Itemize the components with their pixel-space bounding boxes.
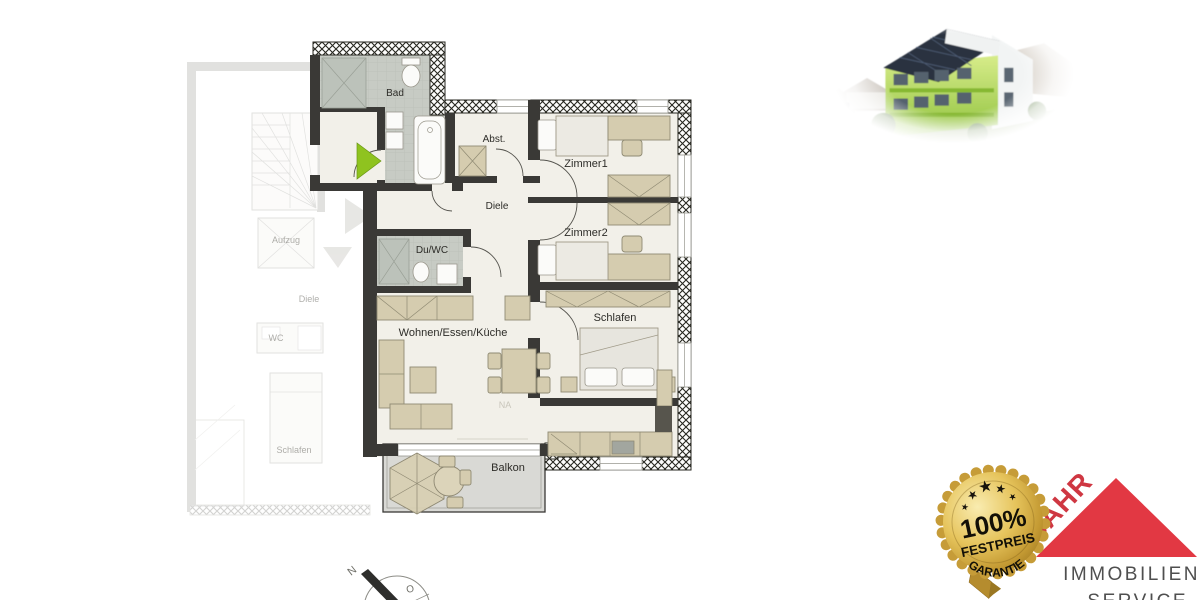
ghost-label-diele: Diele bbox=[299, 294, 320, 304]
room-label-diele: Diele bbox=[486, 201, 509, 212]
chair bbox=[622, 236, 642, 252]
sink bbox=[437, 264, 457, 284]
flyer-canvas: Aufzug Diele WC Schlafen bbox=[0, 0, 1200, 600]
pillow bbox=[622, 368, 654, 386]
room-label-balkon: Balkon bbox=[491, 462, 525, 474]
wardrobe bbox=[608, 203, 670, 225]
kitchen-counter bbox=[505, 296, 530, 320]
compass-north-label: N bbox=[345, 564, 359, 578]
room-label-duwc: Du/WC bbox=[416, 245, 448, 256]
pillow bbox=[585, 368, 617, 386]
room-label-zimmer2: Zimmer2 bbox=[564, 227, 607, 239]
room-label-bad: Bad bbox=[386, 88, 404, 99]
bed bbox=[556, 116, 608, 156]
fridge bbox=[655, 406, 672, 432]
chair bbox=[488, 377, 501, 393]
balcony-table bbox=[434, 466, 464, 496]
nightstand bbox=[561, 377, 577, 392]
chair bbox=[622, 140, 642, 156]
watermark: NA bbox=[499, 400, 512, 410]
bed bbox=[556, 242, 608, 280]
chair bbox=[460, 470, 471, 485]
wardrobe bbox=[546, 291, 670, 307]
pillow bbox=[538, 245, 556, 275]
chair bbox=[439, 456, 455, 467]
chair bbox=[488, 353, 501, 369]
room-label-zimmer1: Zimmer1 bbox=[564, 158, 607, 170]
wardrobe bbox=[608, 175, 670, 197]
ghost-label-aufzug: Aufzug bbox=[272, 235, 300, 245]
ghost-label-wc: WC bbox=[269, 333, 284, 343]
ghost-label-schlafen: Schlafen bbox=[276, 445, 311, 455]
room-label-wohnen: Wohnen/Essen/Küche bbox=[399, 327, 508, 339]
sink bbox=[386, 132, 403, 149]
toilet bbox=[402, 65, 420, 87]
kitchen-sink bbox=[612, 441, 634, 454]
desk bbox=[608, 116, 670, 140]
desk bbox=[608, 254, 670, 280]
compass-icon: N O bbox=[345, 564, 430, 600]
pillow bbox=[538, 120, 556, 150]
chair bbox=[537, 377, 550, 393]
sink bbox=[386, 112, 403, 129]
coffee-table bbox=[410, 367, 436, 393]
room-label-schlafen: Schlafen bbox=[594, 312, 637, 324]
compass-east-label: O bbox=[405, 584, 415, 596]
toilet bbox=[413, 262, 429, 282]
ghost-staircase bbox=[252, 113, 318, 210]
dining-table bbox=[502, 349, 536, 393]
kitchen-counter bbox=[377, 296, 473, 320]
room-label-abst: Abst. bbox=[483, 134, 506, 145]
chair bbox=[537, 353, 550, 369]
chair bbox=[447, 497, 463, 508]
festpreis-seal: ★ ★ ★ ★ ★ 100% FESTPREIS GARANTIE bbox=[933, 460, 1061, 600]
